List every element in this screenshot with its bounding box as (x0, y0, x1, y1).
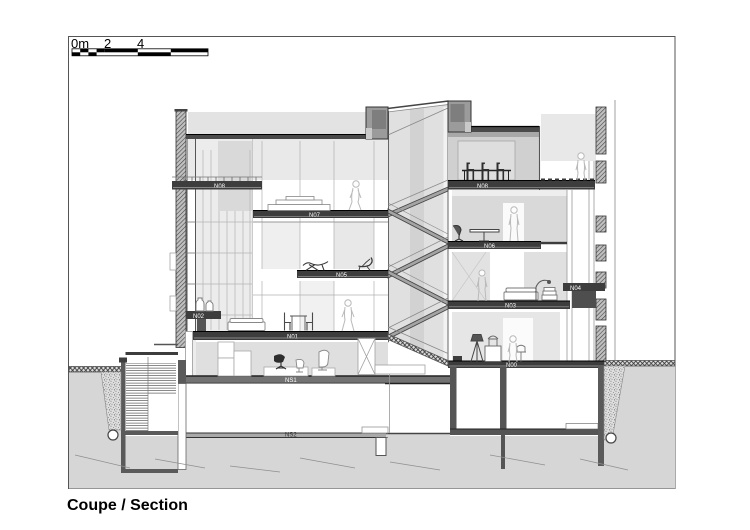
svg-text:NS2: NS2 (285, 433, 297, 439)
svg-text:Coupe / Section: Coupe / Section (67, 497, 188, 514)
svg-text:N01: N01 (287, 335, 299, 341)
svg-text:NS1: NS1 (285, 378, 297, 384)
svg-text:N02: N02 (193, 314, 205, 320)
svg-text:N08: N08 (477, 184, 489, 190)
svg-text:N08: N08 (214, 184, 226, 190)
svg-text:N04: N04 (570, 286, 582, 292)
